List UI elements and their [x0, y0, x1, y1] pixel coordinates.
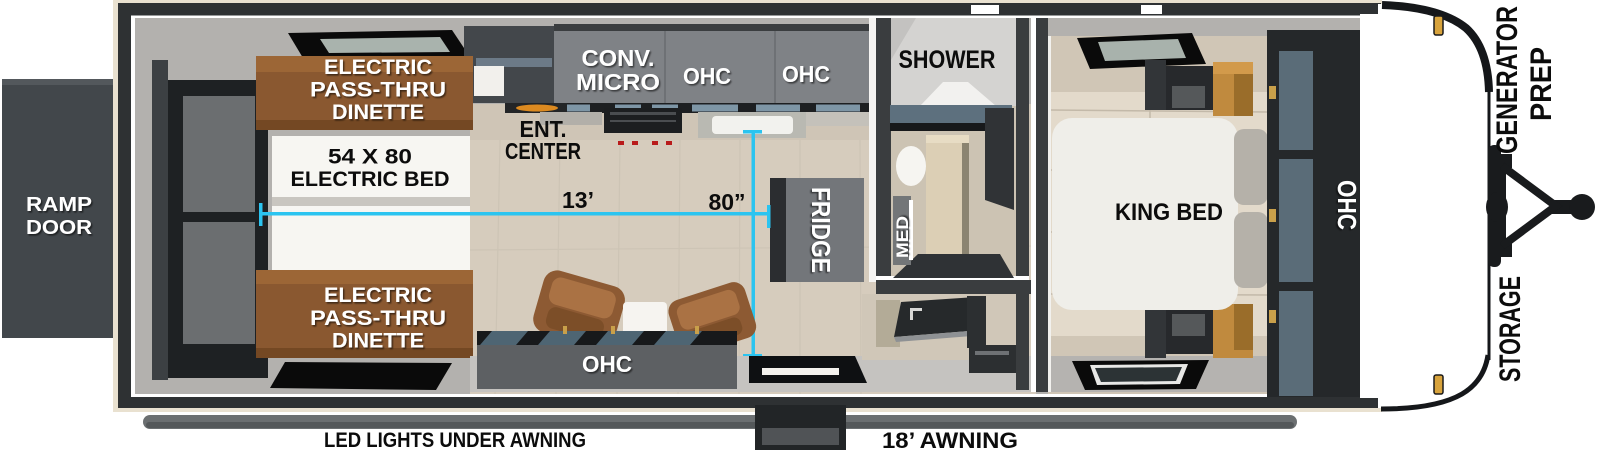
svg-text:54 X 80: 54 X 80	[328, 146, 412, 169]
svg-text:18’ AWNING: 18’ AWNING	[882, 428, 1018, 453]
svg-text:GENERATOR: GENERATOR	[1491, 6, 1524, 154]
svg-text:PASS-THRU: PASS-THRU	[310, 307, 446, 330]
svg-text:OHC: OHC	[582, 351, 632, 377]
svg-text:PREP: PREP	[1525, 47, 1558, 121]
svg-text:80”: 80”	[708, 189, 745, 215]
svg-text:DINETTE: DINETTE	[332, 101, 424, 124]
svg-text:KING BED: KING BED	[1115, 199, 1223, 226]
svg-text:13’: 13’	[562, 187, 594, 213]
svg-text:ELECTRIC: ELECTRIC	[324, 56, 432, 79]
svg-text:CONV.: CONV.	[582, 45, 655, 71]
svg-text:RAMP: RAMP	[26, 194, 92, 216]
svg-text:ELECTRIC BED: ELECTRIC BED	[291, 168, 450, 191]
svg-text:OHC: OHC	[782, 61, 830, 87]
svg-text:PASS-THRU: PASS-THRU	[310, 79, 446, 102]
svg-text:DINETTE: DINETTE	[332, 330, 424, 353]
svg-text:DOOR: DOOR	[26, 217, 93, 239]
svg-text:STORAGE: STORAGE	[1494, 276, 1527, 382]
svg-text:OHC: OHC	[683, 63, 731, 89]
svg-text:MED: MED	[893, 216, 912, 258]
svg-text:MICRO: MICRO	[576, 69, 660, 95]
svg-text:OHC: OHC	[1332, 180, 1362, 230]
svg-text:LED LIGHTS UNDER AWNING: LED LIGHTS UNDER AWNING	[324, 429, 586, 452]
svg-text:FRIDGE: FRIDGE	[806, 187, 836, 273]
svg-text:ELECTRIC: ELECTRIC	[324, 284, 432, 307]
svg-text:SHOWER: SHOWER	[899, 46, 996, 74]
svg-text:CENTER: CENTER	[505, 138, 581, 164]
